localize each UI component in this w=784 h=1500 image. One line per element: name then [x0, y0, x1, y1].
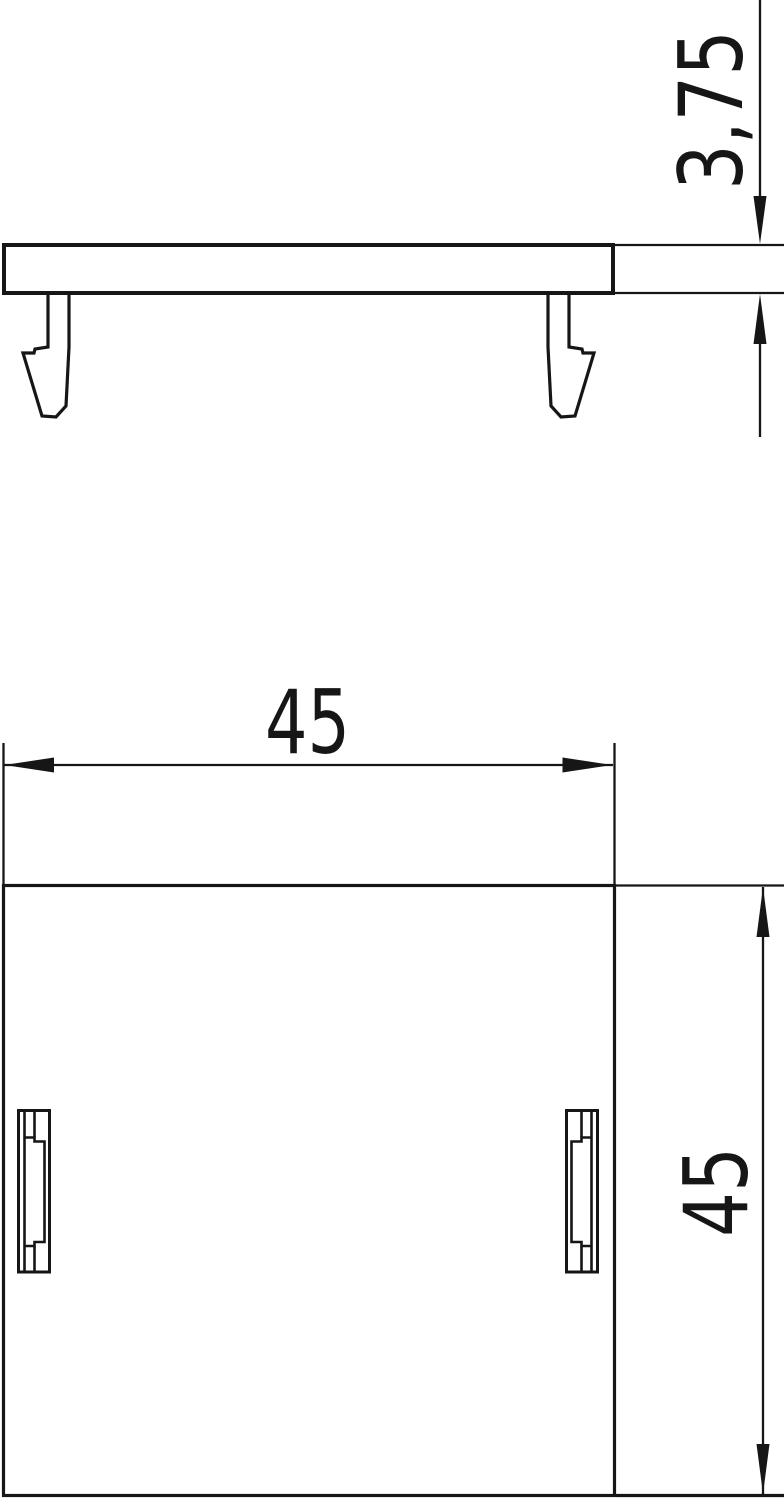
width-dimension: 45: [4, 671, 615, 884]
technical-drawing-canvas: 3,75 45: [0, 0, 784, 1500]
snap-foot-left: [23, 293, 69, 417]
width-dimension-label: 45: [265, 671, 350, 774]
side-view: 3,75: [4, 0, 784, 437]
cover-plate-face: [4, 886, 615, 1496]
thickness-dimension: 3,75: [660, 0, 767, 437]
front-view: 45 45: [4, 671, 784, 1496]
arrowhead-down: [757, 1444, 770, 1494]
arrowhead-down: [754, 196, 767, 244]
snap-foot-right: [548, 293, 594, 417]
technical-drawing-page: 3,75 45: [0, 0, 784, 1500]
arrowhead-left: [5, 758, 55, 773]
cover-plate-profile: [4, 245, 613, 293]
arrowhead-up: [757, 887, 770, 937]
arrowhead-right: [563, 758, 613, 773]
thickness-dimension-label: 3,75: [660, 30, 763, 190]
height-dimension-label: 45: [665, 1147, 768, 1237]
arrowhead-up: [754, 294, 767, 344]
height-dimension: 45: [616, 886, 784, 1496]
